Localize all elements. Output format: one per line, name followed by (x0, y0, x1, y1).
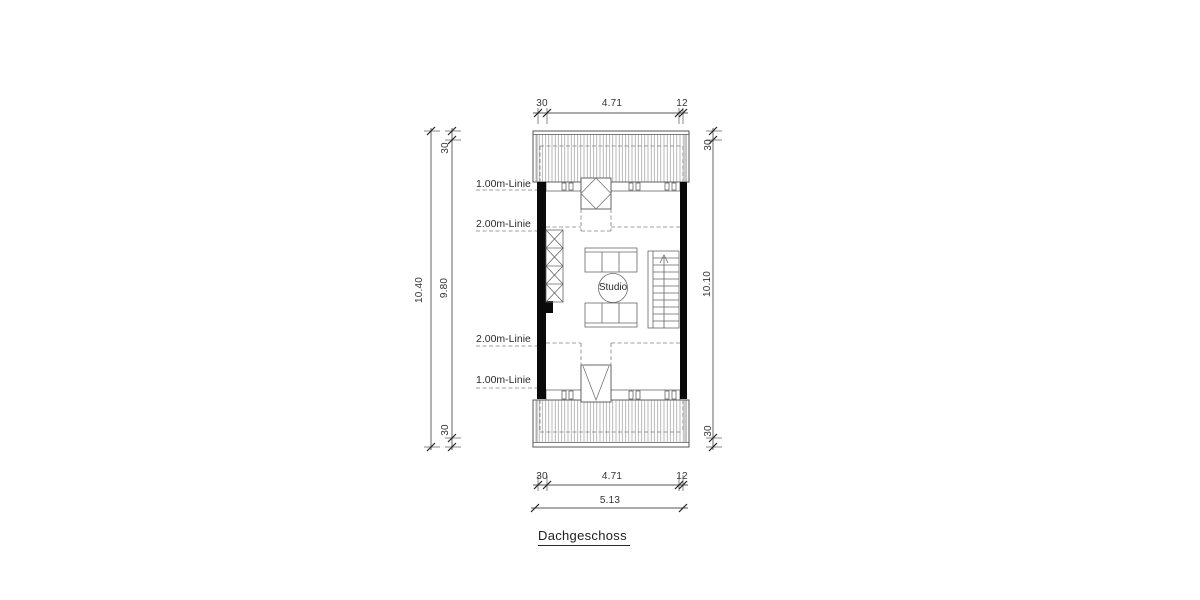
cabinet (546, 230, 563, 302)
dim-bottom-wall-left: 30 (520, 471, 564, 483)
dim-right-interior: 10.10 (702, 262, 714, 306)
dormer-window (581, 343, 611, 402)
dim-top-interior: 4.71 (590, 98, 634, 110)
knee-wall-band-top (546, 182, 680, 191)
sofa-lower (585, 303, 637, 327)
knee-wall-band-bottom (546, 390, 680, 400)
dim-right-top-offset: 30 (703, 123, 715, 167)
room-label-studio: Studio (594, 282, 632, 293)
height-line-1m-top: 1.00m-Linie (476, 178, 534, 190)
wall-pier (546, 301, 553, 313)
dim-left-top-offset: 30 (440, 126, 452, 170)
dim-top-wall-left: 30 (520, 98, 564, 110)
dim-left-interior: 9.80 (439, 266, 451, 310)
dim-top-wall-right: 12 (660, 98, 704, 110)
sofa-upper (585, 248, 637, 272)
dim-bottom-total: 5.13 (588, 495, 632, 507)
wall-right (680, 182, 687, 399)
height-line-1m-bottom: 1.00m-Linie (476, 374, 534, 386)
dim-left-bottom-offset: 30 (440, 408, 452, 452)
dim-right-bottom-offset: 30 (703, 409, 715, 453)
roof-band-top (533, 131, 689, 182)
height-line-2m-bottom: 2.00m-Linie (476, 333, 534, 345)
staircase (648, 251, 679, 328)
height-line-2m-top: 2.00m-Linie (476, 218, 534, 230)
dim-bottom-interior: 4.71 (590, 471, 634, 483)
floor-plan-drawing (0, 0, 1200, 600)
dim-line-left-outer (424, 127, 440, 451)
chimney (581, 178, 611, 231)
floor-plan-sheet: 30 4.71 12 30 4.71 12 5.13 10.40 9.80 30… (0, 0, 1200, 600)
roof-band-bottom (533, 400, 689, 447)
dim-line-top (533, 108, 688, 124)
stair-walk-line (660, 255, 668, 328)
wall-left (537, 182, 546, 399)
dim-left-total: 10.40 (414, 268, 426, 312)
drawing-title: Dachgeschoss (538, 528, 630, 546)
dim-bottom-wall-right: 12 (660, 471, 704, 483)
